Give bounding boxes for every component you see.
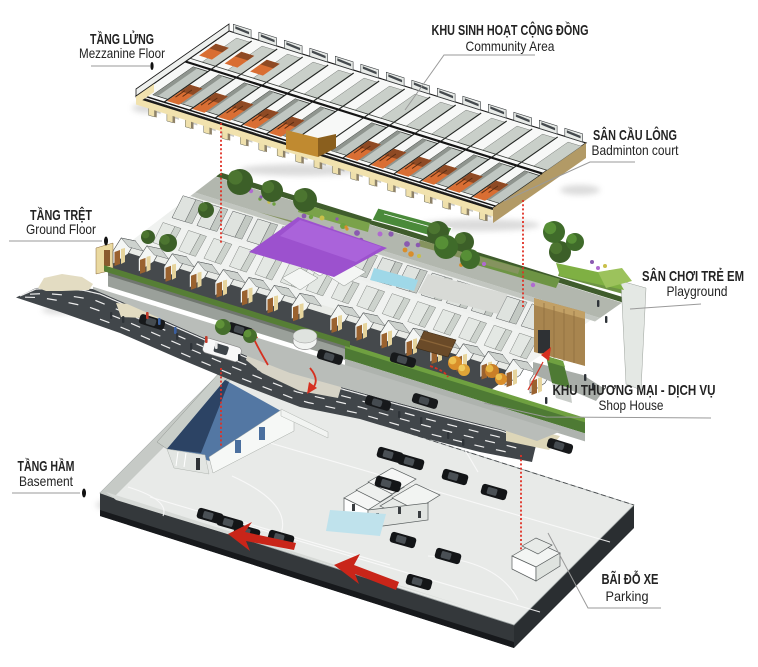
svg-text:Basement: Basement <box>19 473 73 489</box>
svg-text:Shop House: Shop House <box>599 397 664 413</box>
svg-text:Parking: Parking <box>606 588 649 604</box>
svg-text:Mezzanine Floor: Mezzanine Floor <box>79 45 165 61</box>
svg-text:Community Area: Community Area <box>466 38 555 54</box>
svg-text:Ground Floor: Ground Floor <box>26 221 96 237</box>
svg-text:BÃI ĐỖ XE: BÃI ĐỖ XE <box>602 570 659 588</box>
svg-text:Badminton court: Badminton court <box>592 142 679 158</box>
svg-text:KHU SINH HOẠT CỘNG ĐỒNG: KHU SINH HOẠT CỘNG ĐỒNG <box>432 21 589 39</box>
svg-text:Playground: Playground <box>667 283 728 299</box>
